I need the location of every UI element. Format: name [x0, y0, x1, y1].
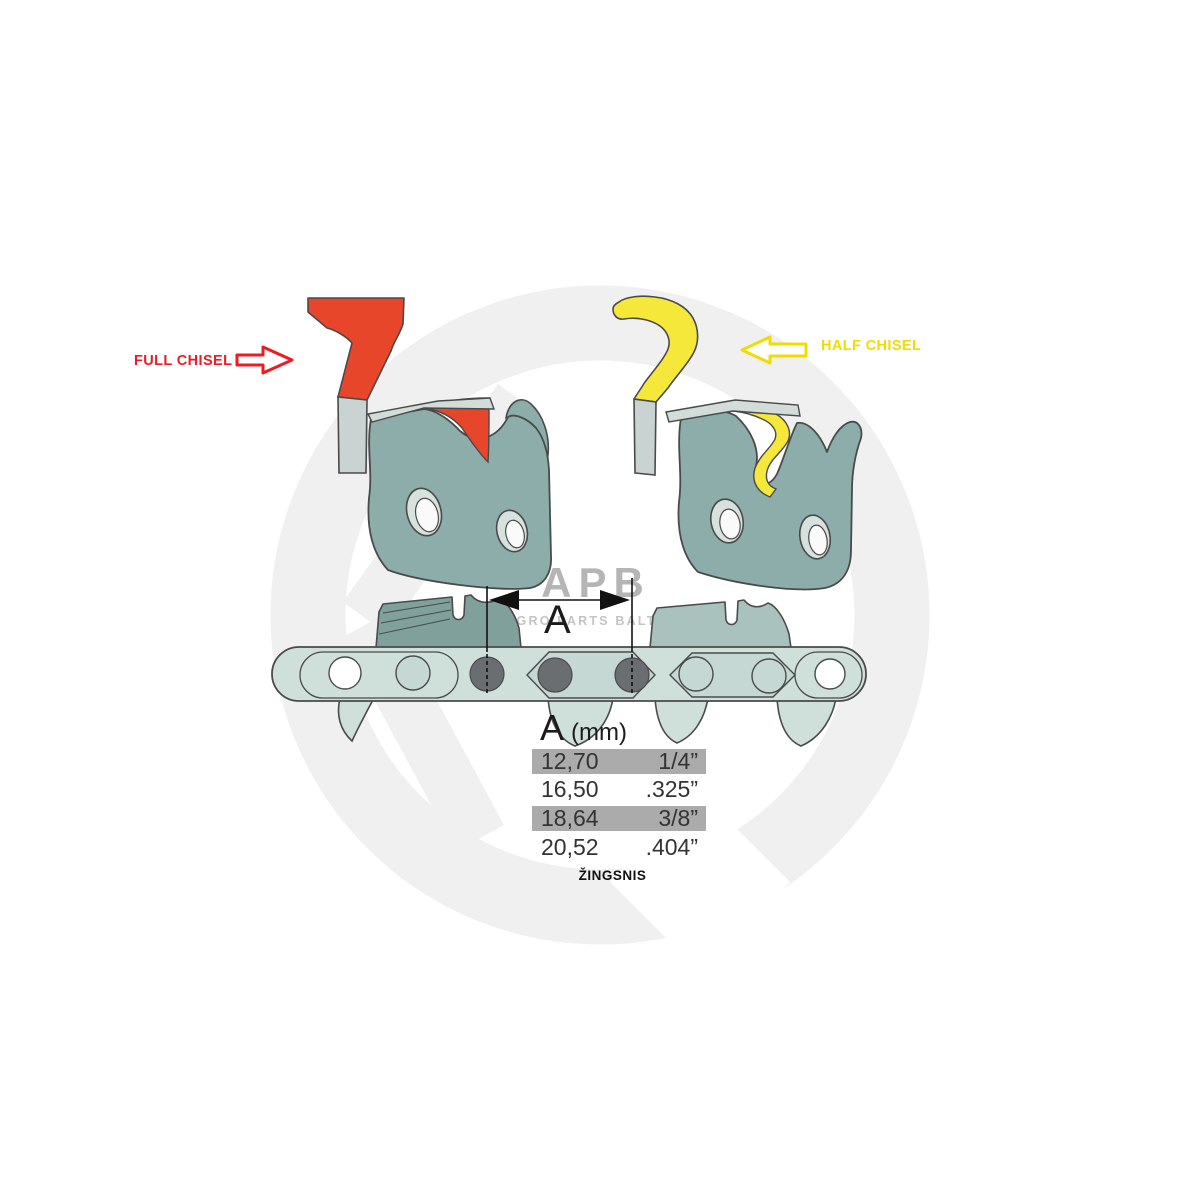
- pitch-table-header-unit: (mm): [571, 719, 627, 746]
- table-row: 18,64 3/8”: [541, 807, 698, 830]
- full-chisel-label: FULL CHISEL: [134, 353, 232, 369]
- half-chisel-label: HALF CHISEL: [821, 338, 921, 354]
- cutter-link-full-chisel: [368, 398, 551, 589]
- link-hole: [329, 657, 361, 689]
- chainsaw-chain-diagram: APB AGRO PARTS BALTIJA: [0, 0, 1188, 1188]
- pitch-caption: ŽINGSNIS: [545, 868, 680, 883]
- pitch-table-header-letter: A: [540, 707, 564, 748]
- cutter-body: [678, 410, 861, 589]
- cutter-body: [368, 409, 551, 589]
- pitch-inch-value: 3/8”: [658, 807, 698, 830]
- chain-tooth-right: [650, 600, 791, 648]
- pitch-dimension-label: A: [544, 598, 571, 643]
- pitch-mm-value: 20,52: [541, 834, 599, 860]
- half-chisel-shank: [634, 399, 656, 475]
- pitch-inch-value: .404”: [646, 836, 698, 859]
- diagram-artwork: APB AGRO PARTS BALTIJA: [0, 0, 1188, 1188]
- full-chisel-shank: [338, 397, 367, 473]
- link-hole: [679, 657, 713, 691]
- pitch-mm-value: 18,64: [541, 805, 599, 831]
- pitch-mm-value: 16,50: [541, 776, 599, 802]
- side-link: [300, 652, 458, 698]
- pitch-inch-value: .325”: [646, 778, 698, 801]
- table-row: 12,70 1/4”: [541, 750, 698, 773]
- pitch-mm-value: 12,70: [541, 748, 599, 774]
- table-row: 16,50 .325”: [541, 778, 698, 801]
- table-row: 20,52 .404”: [541, 836, 698, 859]
- pitch-inch-value: 1/4”: [658, 750, 698, 773]
- rivet: [538, 658, 572, 692]
- pitch-table-header: A(mm): [540, 707, 627, 749]
- drive-tang: [655, 698, 708, 743]
- link-hole: [752, 659, 786, 693]
- full-chisel-arrow-icon: [237, 347, 292, 373]
- link-hole: [815, 659, 845, 689]
- link-hole: [396, 656, 430, 690]
